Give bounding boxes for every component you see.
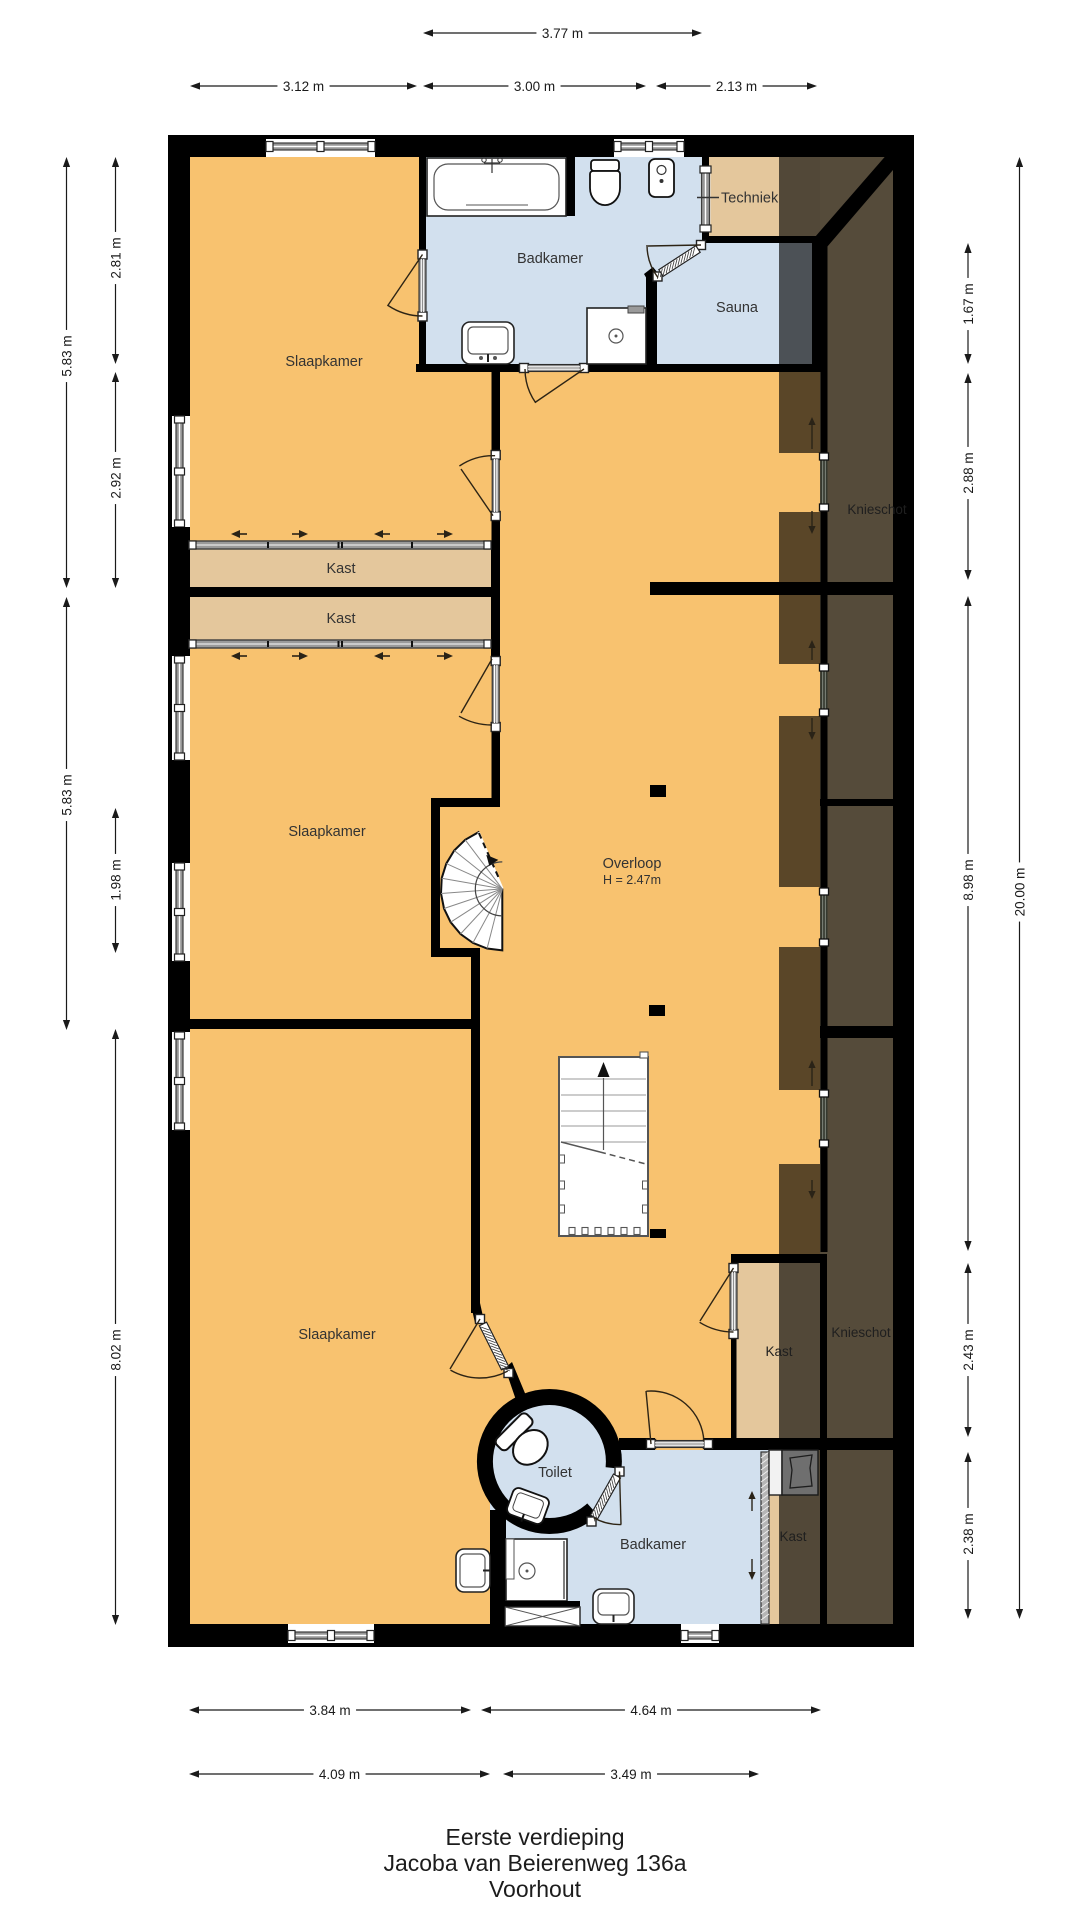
- svg-text:3.49 m: 3.49 m: [610, 1767, 651, 1782]
- svg-text:Knieschot: Knieschot: [831, 1325, 891, 1340]
- svg-text:Badkamer: Badkamer: [517, 251, 583, 267]
- svg-text:5.83 m: 5.83 m: [59, 335, 74, 376]
- svg-text:Overloop: Overloop: [603, 856, 662, 872]
- svg-text:Slaapkamer: Slaapkamer: [285, 354, 363, 370]
- svg-text:4.09 m: 4.09 m: [319, 1767, 360, 1782]
- svg-text:Techniek: Techniek: [721, 191, 779, 207]
- svg-text:Voorhout: Voorhout: [489, 1876, 582, 1902]
- svg-text:Toilet: Toilet: [538, 1465, 572, 1481]
- svg-text:3.12 m: 3.12 m: [283, 79, 324, 94]
- svg-text:Sauna: Sauna: [716, 300, 759, 316]
- svg-text:Knieschot: Knieschot: [847, 502, 907, 517]
- svg-text:2.38 m: 2.38 m: [961, 1513, 976, 1554]
- svg-text:2.92 m: 2.92 m: [108, 457, 123, 498]
- svg-text:8.98 m: 8.98 m: [961, 859, 976, 900]
- svg-text:Kast: Kast: [326, 611, 355, 627]
- svg-text:H = 2.47m: H = 2.47m: [603, 873, 661, 887]
- svg-text:1.67 m: 1.67 m: [961, 283, 976, 324]
- svg-text:3.84 m: 3.84 m: [309, 1703, 350, 1718]
- svg-text:4.64 m: 4.64 m: [630, 1703, 671, 1718]
- svg-text:Jacoba van Beierenweg 136a: Jacoba van Beierenweg 136a: [383, 1850, 686, 1876]
- svg-text:2.88 m: 2.88 m: [961, 452, 976, 493]
- svg-text:3.00 m: 3.00 m: [514, 79, 555, 94]
- svg-text:2.13 m: 2.13 m: [716, 79, 757, 94]
- svg-text:20.00 m: 20.00 m: [1012, 868, 1027, 917]
- svg-text:Badkamer: Badkamer: [620, 1537, 686, 1553]
- svg-text:Slaapkamer: Slaapkamer: [298, 1327, 376, 1343]
- svg-text:Kast: Kast: [326, 561, 355, 577]
- svg-text:Kast: Kast: [765, 1344, 792, 1359]
- svg-text:3.77 m: 3.77 m: [542, 26, 583, 41]
- svg-text:Kast: Kast: [779, 1529, 806, 1544]
- svg-text:2.43 m: 2.43 m: [961, 1329, 976, 1370]
- svg-text:2.81 m: 2.81 m: [108, 237, 123, 278]
- svg-text:8.02 m: 8.02 m: [108, 1329, 123, 1370]
- svg-text:Eerste verdieping: Eerste verdieping: [446, 1824, 625, 1850]
- svg-text:Slaapkamer: Slaapkamer: [288, 824, 366, 840]
- svg-text:1.98 m: 1.98 m: [108, 859, 123, 900]
- svg-text:5.83 m: 5.83 m: [59, 774, 74, 815]
